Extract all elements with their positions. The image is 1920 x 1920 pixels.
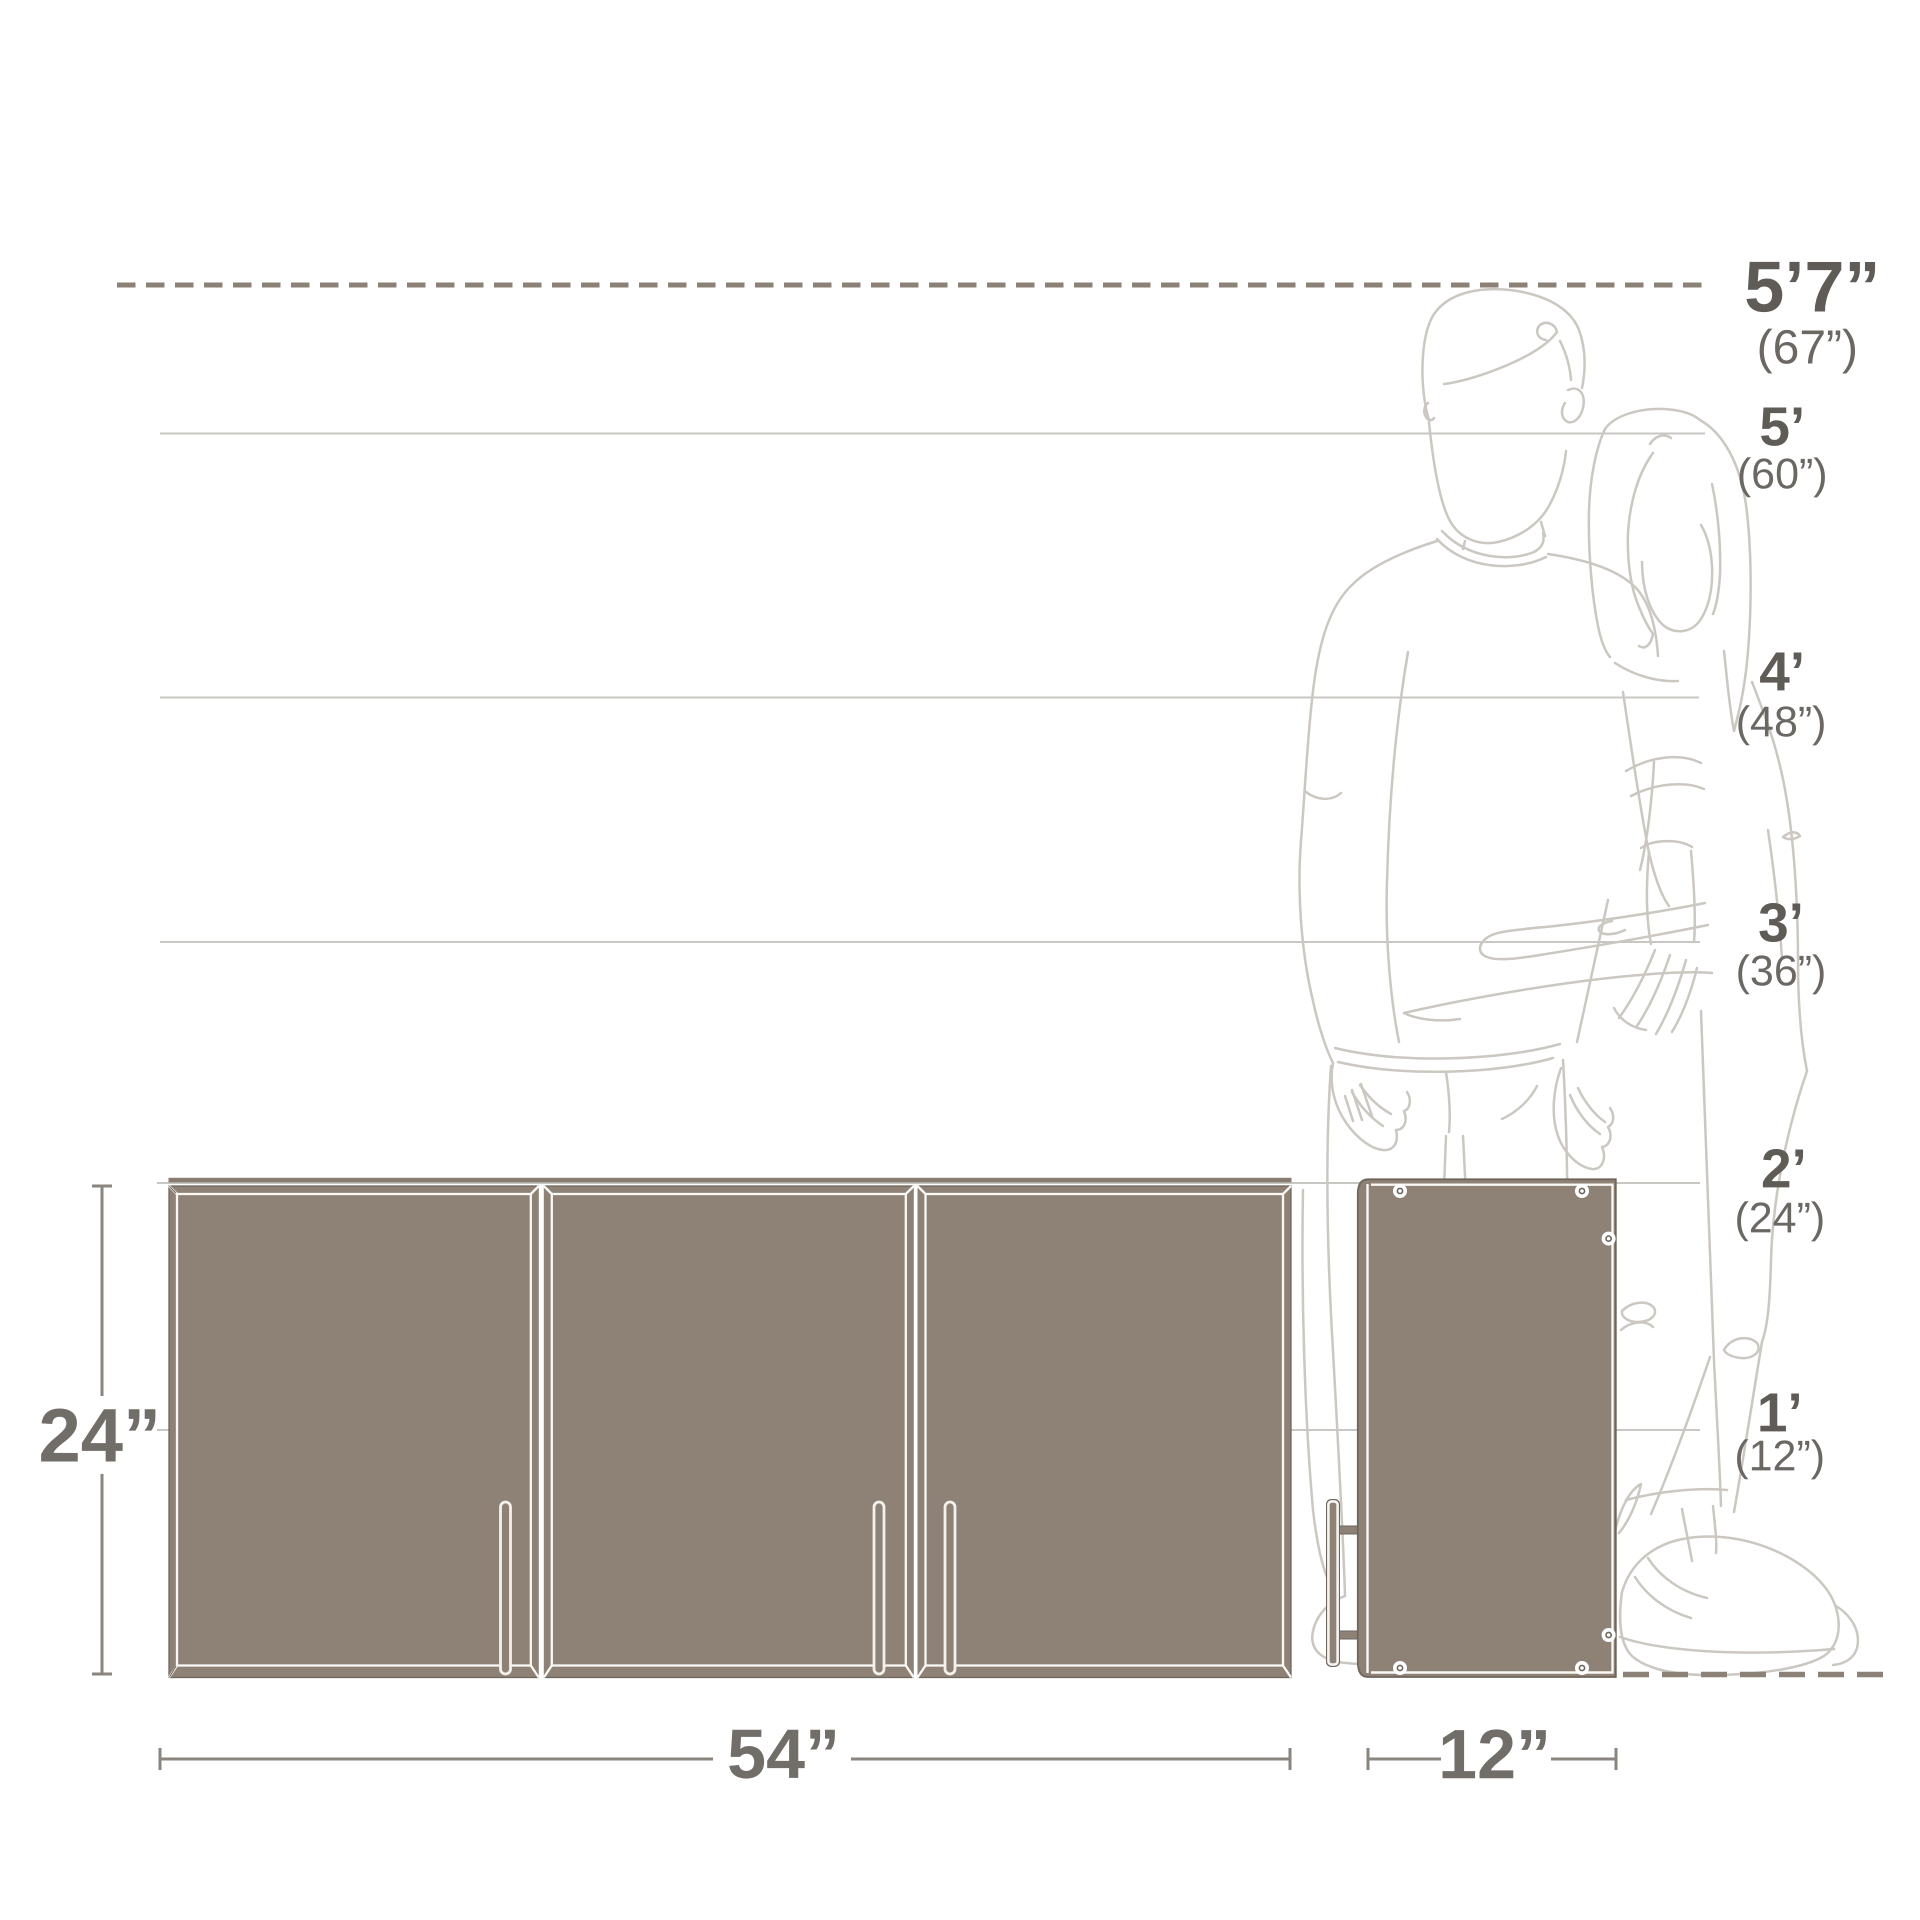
svg-text:2’: 2’ [1761,1137,1807,1199]
svg-text:24”: 24” [38,1394,161,1479]
svg-text:(12”): (12”) [1734,1432,1825,1480]
svg-text:4’: 4’ [1759,640,1805,702]
svg-text:54”: 54” [727,1715,840,1793]
svg-text:(60”): (60”) [1737,450,1828,498]
svg-text:(36”): (36”) [1736,947,1827,995]
svg-text:3’: 3’ [1758,891,1804,953]
svg-text:12”: 12” [1438,1715,1551,1793]
svg-text:(24”): (24”) [1734,1194,1825,1242]
svg-text:5’7”: 5’7” [1744,247,1880,327]
svg-text:(67”): (67”) [1757,321,1858,374]
svg-text:5’: 5’ [1759,395,1805,457]
svg-text:(48”): (48”) [1736,698,1827,746]
